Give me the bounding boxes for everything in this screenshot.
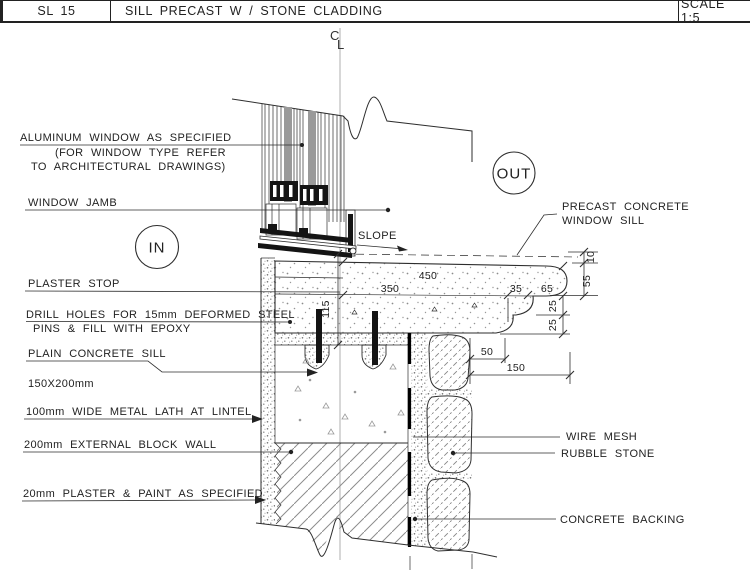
dim-450: 450 — [419, 270, 437, 282]
svg-text:150X200mm: 150X200mm — [28, 378, 94, 390]
dim-25b: 25 — [547, 319, 559, 331]
window-section — [258, 104, 356, 258]
label-block-wall: 200mm EXTERNAL BLOCK WALL — [24, 439, 216, 451]
drawing-sheet: SL 15 SILL PRECAST W / STONE CLADDING SC… — [0, 0, 750, 571]
dim-150: 150 — [507, 362, 525, 374]
svg-text:WINDOW SILL: WINDOW SILL — [562, 215, 644, 227]
label-precast-sill: PRECAST CONCRETE — [562, 201, 689, 213]
detail-code: SL 15 — [0, 1, 111, 21]
label-plaster-stop: PLASTER STOP — [28, 278, 120, 290]
dim-65: 65 — [541, 283, 553, 295]
dim-10: 10 — [585, 251, 597, 263]
top-break-line — [232, 97, 472, 162]
label-rubble-stone: RUBBLE STONE — [561, 448, 655, 460]
plain-concrete-sill-region — [295, 358, 404, 434]
svg-text:OUT: OUT — [497, 166, 532, 183]
detail-scale: SCALE 1:5 — [678, 1, 750, 21]
label-concrete-backing: CONCRETE BACKING — [560, 514, 685, 526]
dim-25a: 25 — [547, 300, 559, 312]
title-block: SL 15 SILL PRECAST W / STONE CLADDING SC… — [0, 0, 750, 23]
section-detail-drawing: C L — [0, 0, 750, 571]
centerline-symbol-l: L — [337, 37, 344, 52]
dim-50: 50 — [481, 346, 493, 358]
block-wall — [275, 333, 408, 555]
dim-35: 35 — [510, 283, 522, 295]
label-plaster-paint: 20mm PLASTER & PAINT AS SPECIFIED — [23, 488, 263, 500]
dim-115: 115 — [320, 300, 332, 318]
dim-350: 350 — [381, 283, 399, 295]
rubble-stone-cladding — [427, 335, 472, 551]
label-window-jamb: WINDOW JAMB — [28, 197, 117, 209]
svg-text:PINS & FILL WITH EPOXY: PINS & FILL WITH EPOXY — [33, 323, 191, 335]
detail-title: SILL PRECAST W / STONE CLADDING — [111, 1, 678, 21]
label-wire-mesh: WIRE MESH — [566, 431, 637, 443]
label-drill-holes: DRILL HOLES FOR 15mm DEFORMED STEEL — [26, 309, 295, 321]
svg-text:TO ARCHITECTURAL DRAWINGS): TO ARCHITECTURAL DRAWINGS) — [31, 161, 226, 173]
svg-text:IN: IN — [149, 240, 166, 257]
sash-bottom-rail — [270, 181, 328, 205]
label-metal-lath: 100mm WIDE METAL LATH AT LINTEL — [26, 406, 252, 418]
label-aluminum-window: ALUMINUM WINDOW AS SPECIFIED — [20, 132, 231, 144]
svg-text:SLOPE: SLOPE — [358, 230, 397, 242]
steel-pin — [372, 311, 378, 365]
dim-55: 55 — [581, 275, 593, 287]
svg-text:(FOR WINDOW TYPE REFER: (FOR WINDOW TYPE REFER — [55, 147, 226, 159]
label-plain-concrete-sill: PLAIN CONCRETE SILL — [28, 348, 166, 360]
slope-annotation: SLOPE — [357, 230, 408, 252]
in-marker: IN — [136, 226, 179, 269]
out-marker: OUT — [493, 152, 535, 194]
